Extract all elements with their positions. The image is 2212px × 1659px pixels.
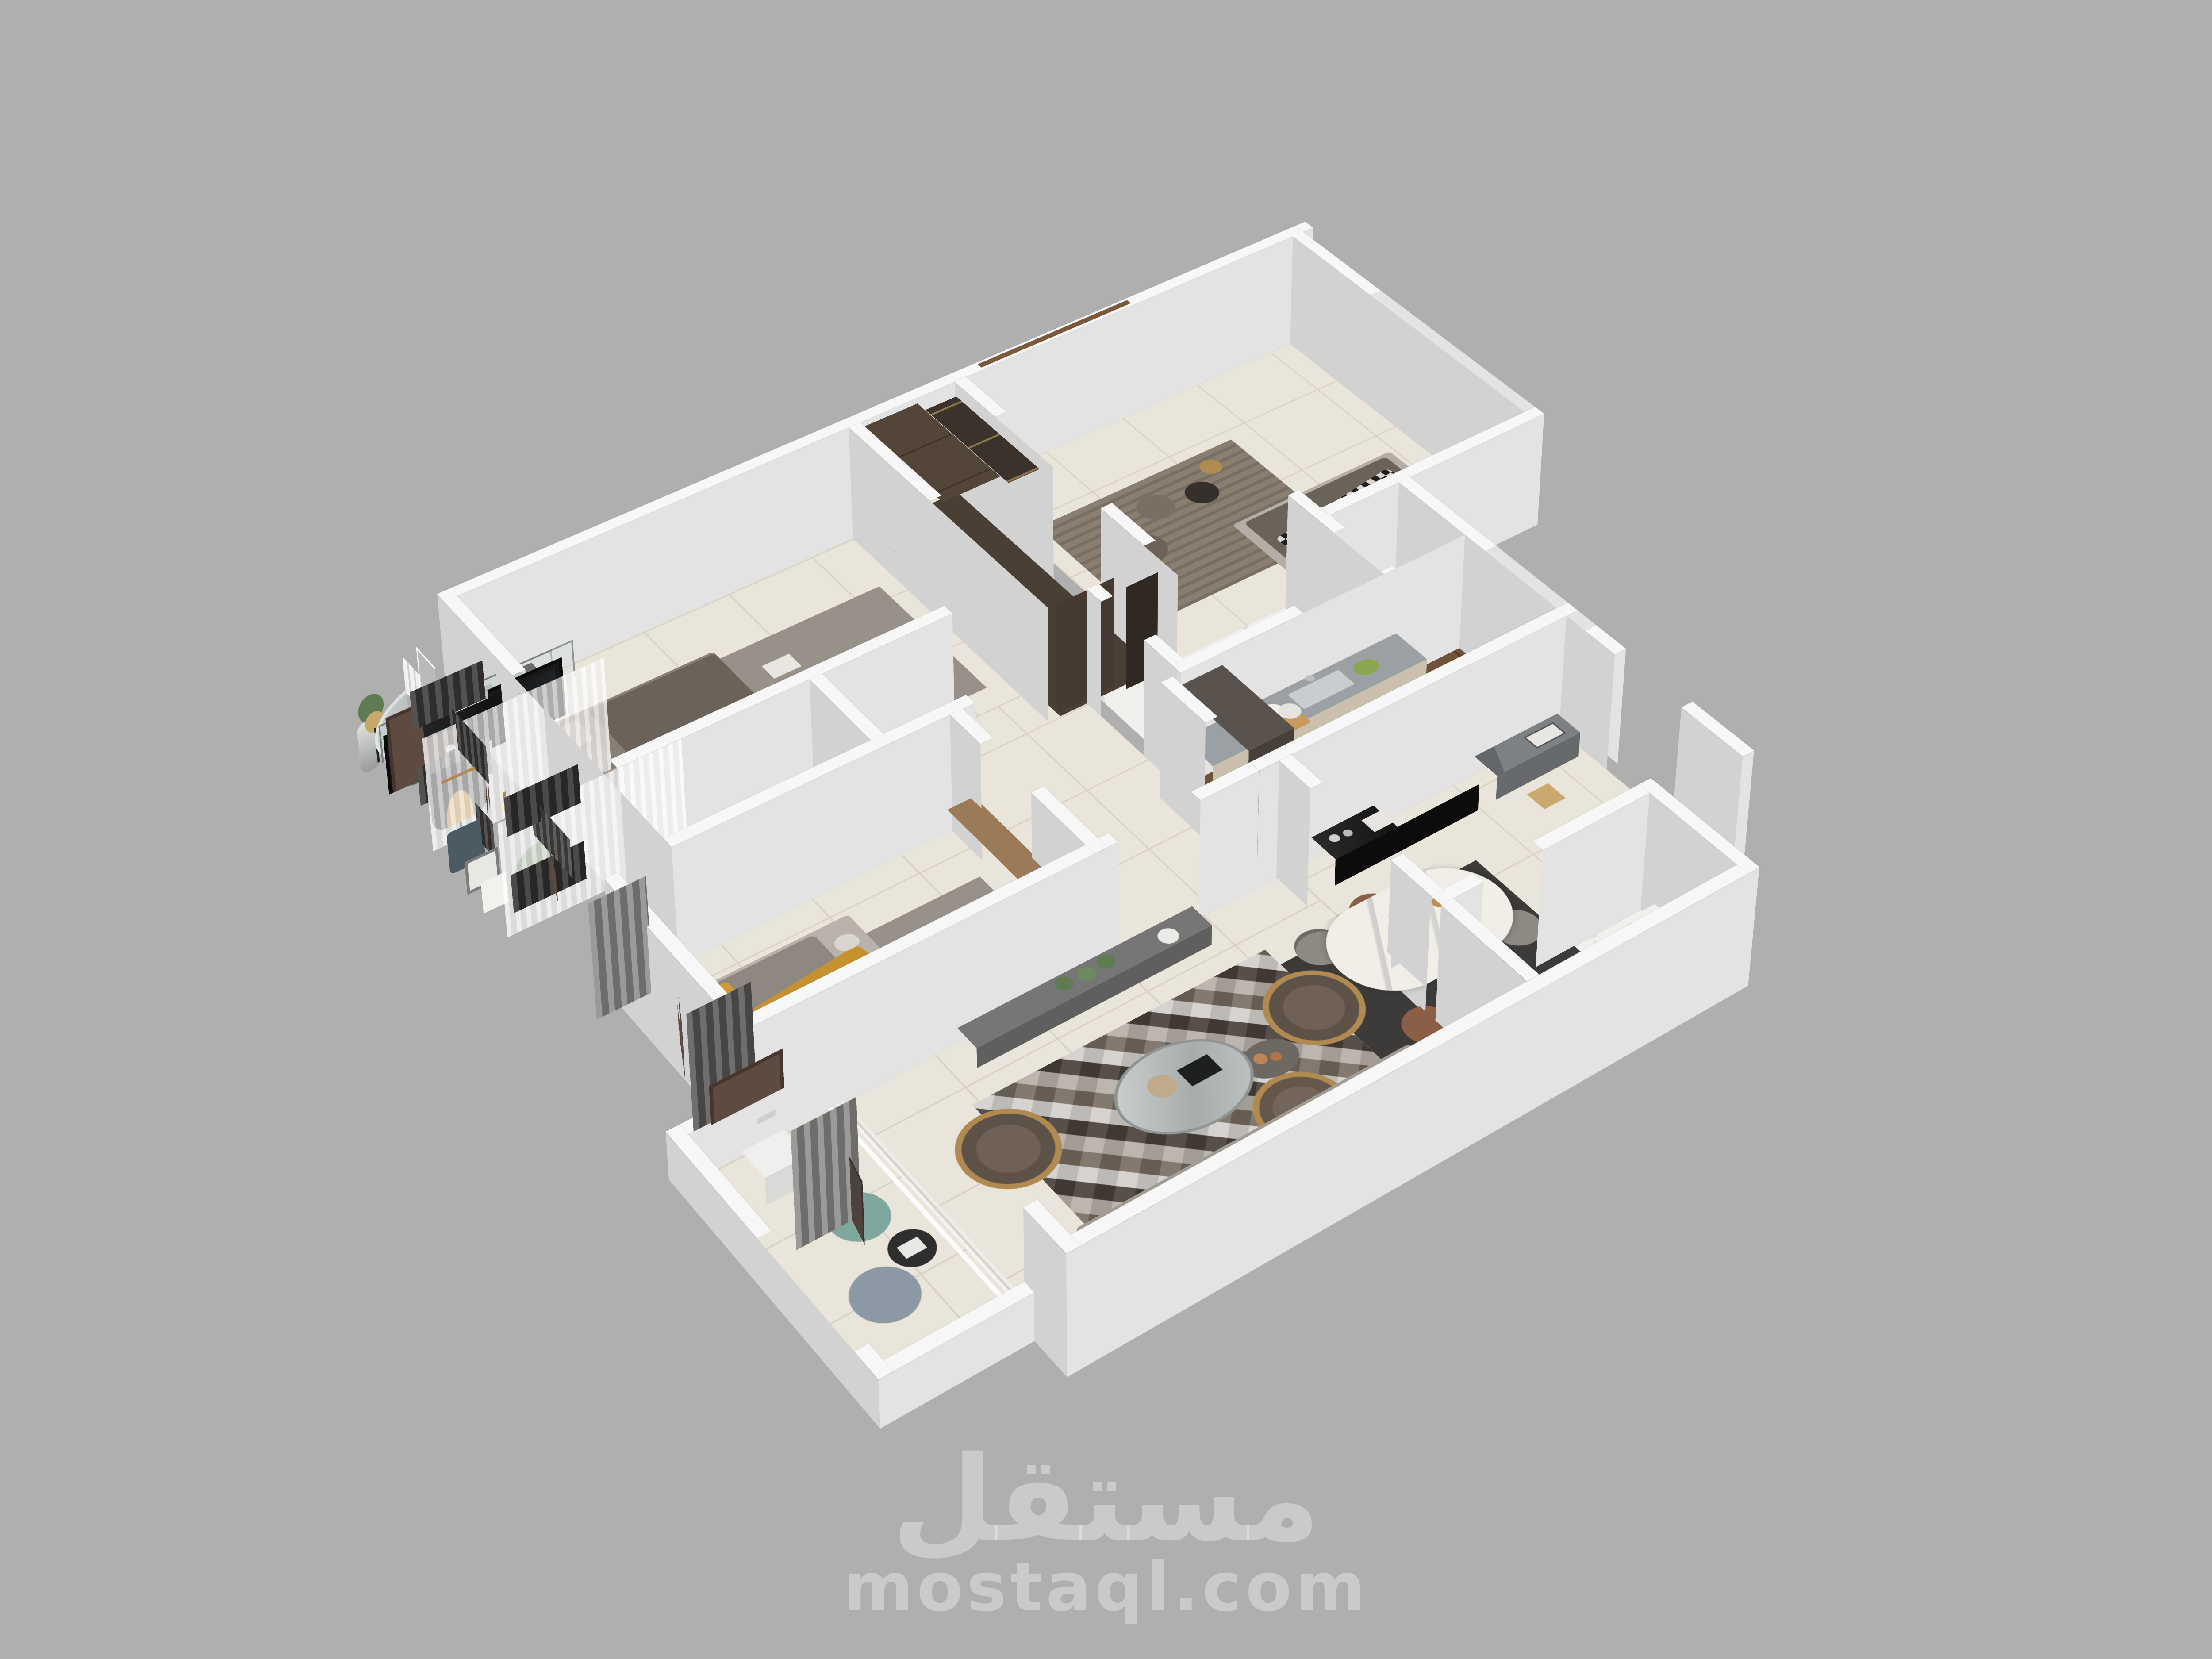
- console-candle-1: [1327, 833, 1343, 843]
- copper-box-2: [1268, 1050, 1284, 1062]
- console-candle-2: [1341, 828, 1355, 838]
- pampas-vase: [1141, 1071, 1183, 1102]
- watermark-site-text: mostaql.com: [0, 1555, 2212, 1619]
- armchair-left-cushion: [964, 1115, 1053, 1182]
- armchair-right-cushion: [1271, 976, 1358, 1039]
- watermark: مستقل mostaql.com: [0, 1444, 2212, 1619]
- coffee-table-books: [1177, 1054, 1223, 1087]
- balcony-table-book: [897, 1237, 927, 1259]
- master-curtain-1: [588, 876, 657, 1073]
- console-books: [1361, 807, 1401, 832]
- watermark-logo: مستقل: [0, 1444, 2212, 1555]
- apartment-floor-plan: [340, 344, 1946, 1445]
- render-scene: مستقل mostaql.com: [0, 0, 2212, 1659]
- copper-box-1: [1251, 1052, 1271, 1066]
